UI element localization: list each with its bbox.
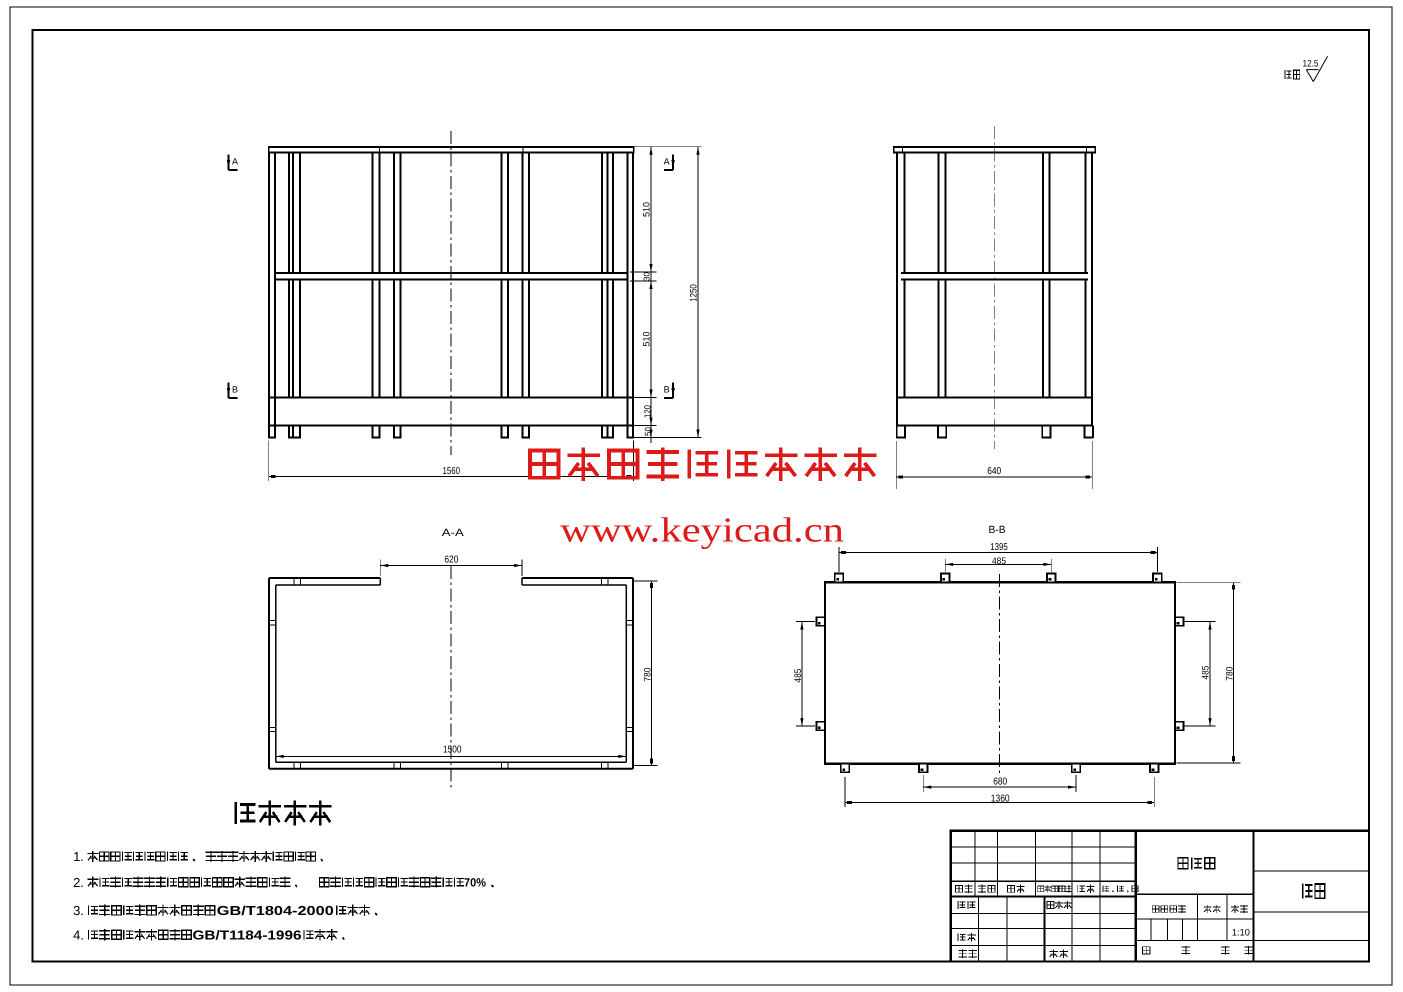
svg-text:3.: 3.: [73, 903, 84, 918]
svg-text:120: 120: [643, 405, 653, 418]
svg-text:1360: 1360: [991, 793, 1010, 804]
svg-text:B: B: [232, 385, 238, 395]
svg-text:GB/T1184-1996: GB/T1184-1996: [193, 927, 302, 942]
svg-text:70%: 70%: [464, 876, 486, 890]
svg-text:780: 780: [1224, 667, 1235, 681]
svg-text:B-B: B-B: [989, 524, 1006, 536]
svg-text:1395: 1395: [990, 542, 1008, 553]
svg-text:485: 485: [1201, 666, 1212, 680]
svg-text:510: 510: [642, 202, 653, 217]
svg-text:510: 510: [642, 332, 653, 347]
svg-text:GB/T1804-2000: GB/T1804-2000: [217, 903, 334, 918]
svg-text:4.: 4.: [73, 927, 84, 942]
svg-text:1250: 1250: [689, 284, 700, 302]
svg-text:A: A: [664, 157, 670, 167]
svg-text:www.keyicad.cn: www.keyicad.cn: [560, 511, 844, 550]
svg-text:1560: 1560: [442, 466, 460, 477]
svg-text:B: B: [664, 385, 670, 395]
svg-text:A: A: [232, 157, 238, 167]
svg-text:A-A: A-A: [442, 527, 464, 539]
svg-text:620: 620: [444, 554, 458, 565]
svg-text:640: 640: [987, 466, 1001, 477]
svg-text:780: 780: [642, 668, 653, 682]
svg-text:30: 30: [641, 272, 651, 281]
svg-text:485: 485: [793, 669, 804, 683]
svg-text:2.: 2.: [73, 875, 84, 890]
svg-text:12.5: 12.5: [1303, 59, 1319, 70]
svg-text:50: 50: [643, 427, 653, 436]
svg-text:680: 680: [993, 777, 1007, 788]
svg-text:1.: 1.: [73, 849, 84, 864]
svg-text:1500: 1500: [443, 744, 462, 755]
svg-text:1:10: 1:10: [1232, 927, 1250, 938]
svg-text:485: 485: [992, 556, 1006, 567]
